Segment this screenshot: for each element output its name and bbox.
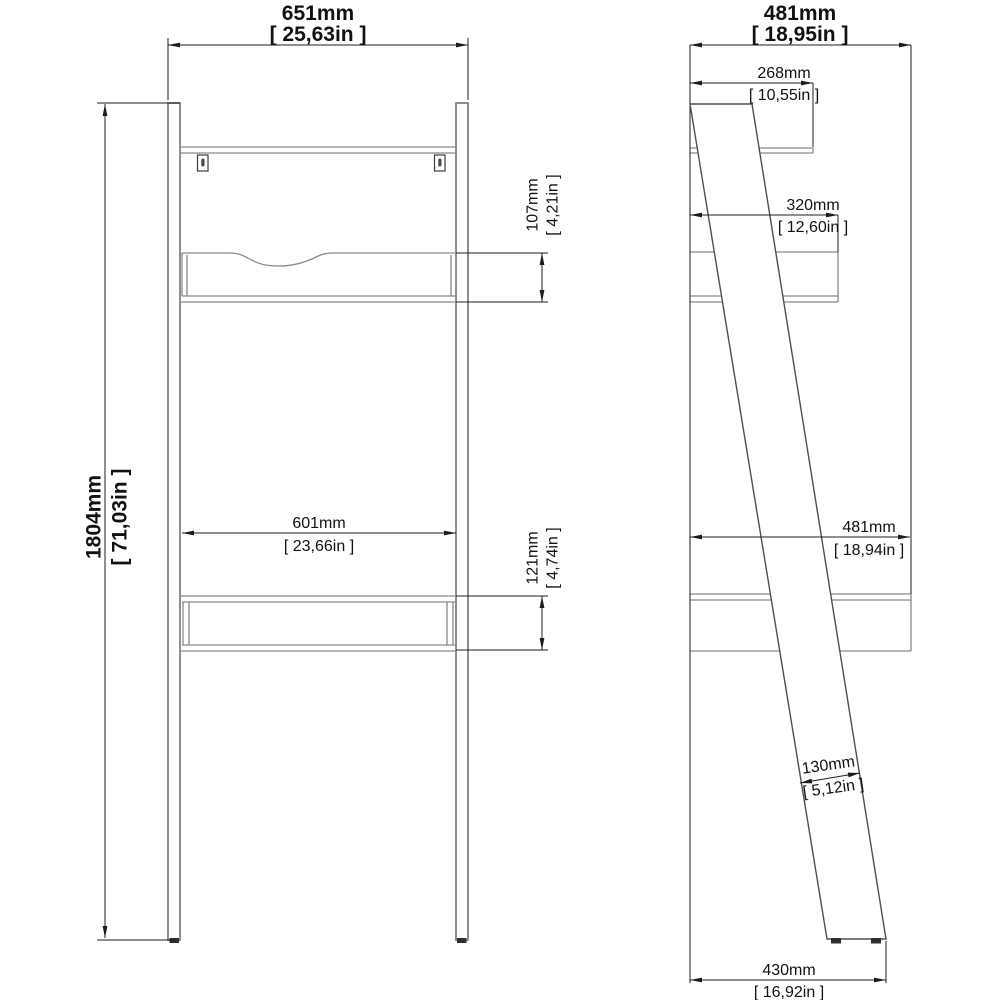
dim-label-floor-depth-inch: [ 16,92in ] bbox=[754, 984, 824, 1000]
dim-label-desk-height-inch: [ 4,74in ] bbox=[545, 527, 562, 588]
keyhole-bracket-left bbox=[198, 155, 209, 171]
side-rear-foot bbox=[871, 938, 881, 944]
dim-label-overall-depth-mm: 481mm bbox=[764, 2, 836, 25]
drawer-front bbox=[182, 253, 456, 296]
desk-front bbox=[180, 596, 456, 651]
dim-label-desktop-depth-mm: 481mm bbox=[842, 519, 895, 536]
dim-label-top-shelf-depth-mm: 268mm bbox=[757, 65, 810, 82]
technical-drawing: 651mm [ 25,63in ] 1804mm [ 71,03in ] 107… bbox=[0, 0, 1000, 1000]
dim-label-overall-depth-inch: [ 18,95in ] bbox=[752, 23, 849, 46]
dim-label-floor-depth-mm: 430mm bbox=[762, 962, 815, 979]
side-view: 481mm [ 18,95in ] 268mm [ 10,55in ] 320m… bbox=[690, 2, 911, 1000]
side-front-foot bbox=[831, 938, 841, 944]
dim-label-desktop-depth-inch: [ 18,94in ] bbox=[834, 542, 904, 559]
front-left-post bbox=[168, 103, 180, 940]
keyhole-bracket-right bbox=[435, 155, 446, 171]
drawing-canvas: 651mm [ 25,63in ] 1804mm [ 71,03in ] 107… bbox=[0, 0, 1000, 1000]
dim-label-drawer-height-inch: [ 4,21in ] bbox=[545, 174, 562, 235]
dim-label-top-shelf-depth-inch: [ 10,55in ] bbox=[749, 87, 819, 104]
front-right-post bbox=[456, 103, 468, 940]
dim-label-inner-width-mm: 601mm bbox=[292, 515, 345, 532]
dim-label-drawer-height-mm: 107mm bbox=[525, 178, 542, 231]
dim-label-front-overall-height-inch: [ 71,03in ] bbox=[108, 469, 131, 566]
dim-label-front-overall-width-mm: 651mm bbox=[282, 2, 354, 25]
front-view: 651mm [ 25,63in ] 1804mm [ 71,03in ] 107… bbox=[82, 2, 561, 943]
front-dimensions: 651mm [ 25,63in ] 1804mm [ 71,03in ] 107… bbox=[82, 2, 561, 940]
dim-label-front-overall-width-inch: [ 25,63in ] bbox=[270, 23, 367, 46]
dim-label-drawer-depth-inch: [ 12,60in ] bbox=[778, 219, 848, 236]
dim-label-desk-height-mm: 121mm bbox=[525, 531, 542, 584]
front-right-foot bbox=[457, 938, 467, 943]
dim-label-inner-width-inch: [ 23,66in ] bbox=[284, 538, 354, 555]
dim-label-drawer-depth-mm: 320mm bbox=[786, 197, 839, 214]
dim-label-front-overall-height-mm: 1804mm bbox=[82, 475, 105, 559]
